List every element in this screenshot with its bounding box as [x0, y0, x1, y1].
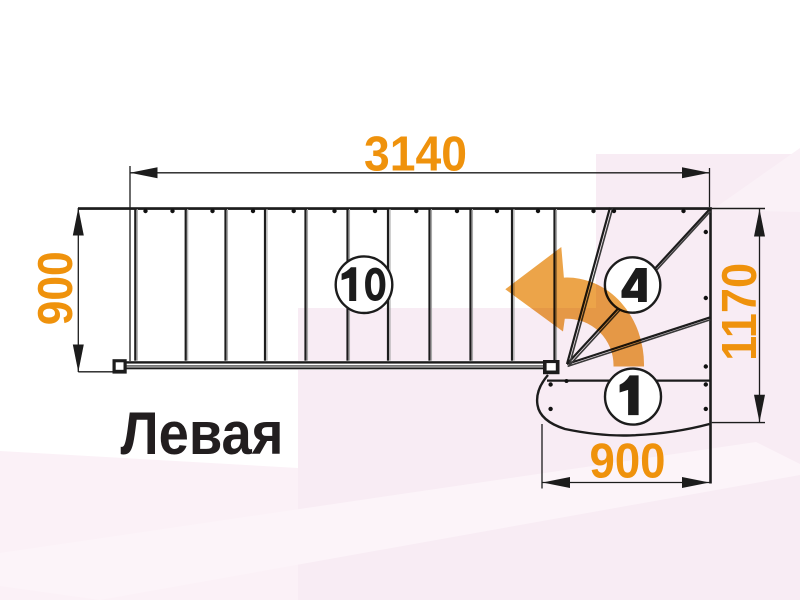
svg-text:1170: 1170: [713, 263, 767, 361]
svg-text:3140: 3140: [364, 127, 467, 181]
svg-text:900: 900: [29, 251, 83, 325]
svg-text:Левая: Левая: [121, 400, 284, 467]
svg-text:900: 900: [590, 435, 666, 489]
